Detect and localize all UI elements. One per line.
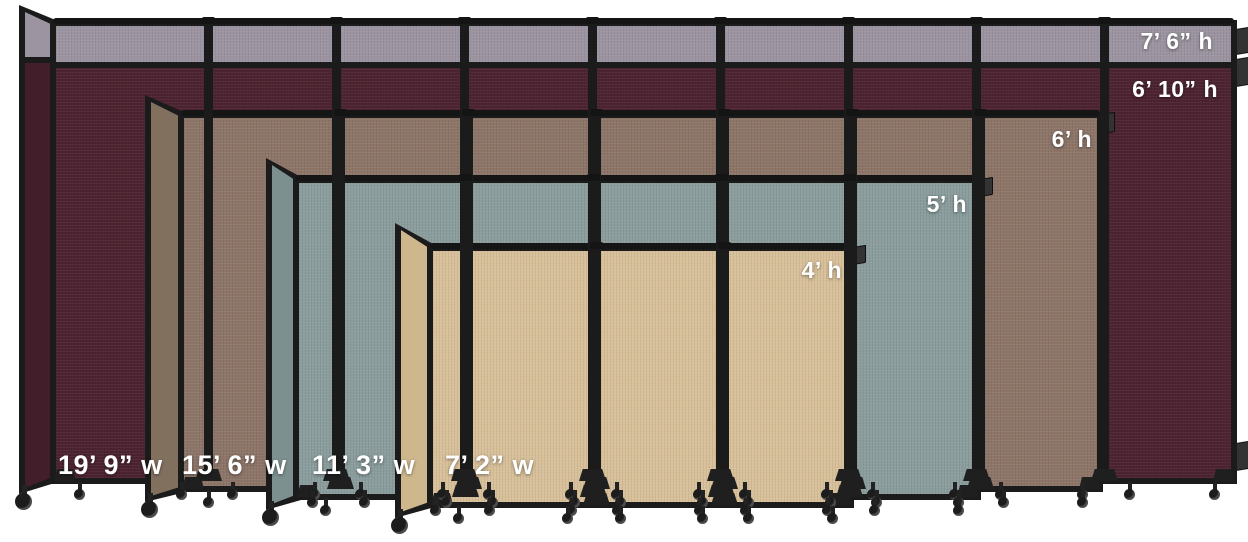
panel-frame-bar xyxy=(976,118,985,486)
caster-wheel xyxy=(1213,482,1217,491)
caster-wheel xyxy=(363,490,367,499)
caster-wheel xyxy=(148,493,153,504)
caster-wheel xyxy=(434,498,438,507)
caster-wheel xyxy=(1002,490,1006,499)
bar-top-cap xyxy=(974,109,987,116)
bar-top-cap xyxy=(202,17,215,24)
caster-wheel xyxy=(747,506,751,515)
caster-wheel xyxy=(457,506,461,515)
bar-top-cap xyxy=(718,242,731,249)
panel-frame-bar xyxy=(720,251,729,502)
bar-top-cap xyxy=(462,109,475,116)
caster-wheel xyxy=(207,490,211,499)
caster-wheel xyxy=(957,498,961,507)
caster-wheel xyxy=(311,490,315,499)
panel-frame-bar xyxy=(592,251,601,502)
caster-wheel xyxy=(324,498,328,507)
height-label: 6’ 10” h xyxy=(1132,76,1218,102)
caster-wheel xyxy=(445,490,449,499)
bar-top-cap xyxy=(458,17,471,24)
bar-top-cap xyxy=(590,109,603,116)
panel-foot xyxy=(711,493,738,505)
size-comparison-figure: 7’ 6” h6’ 10” h19’ 9” w6’ h15’ 6” w5’ h1… xyxy=(0,0,1248,542)
caster-wheel xyxy=(619,506,623,515)
caster-wheel xyxy=(231,482,235,491)
panel-frame-bar xyxy=(204,26,213,478)
panel-foot xyxy=(452,485,479,497)
bar-top-cap xyxy=(970,17,983,24)
bar-top-cap xyxy=(590,242,603,249)
caster-wheel xyxy=(873,498,877,507)
width-label: 7’ 2” w xyxy=(445,450,534,481)
caster-wheel xyxy=(1128,482,1132,491)
bar-top-cap xyxy=(846,109,859,116)
bar-top-cap xyxy=(715,174,728,181)
height-label: 4’ h xyxy=(802,257,842,283)
width-label: 19’ 9” w xyxy=(58,450,163,481)
height-label: 7’ 6” h xyxy=(1140,28,1213,54)
caster-wheel xyxy=(269,501,274,512)
bar-top-cap xyxy=(586,17,599,24)
caster-wheel xyxy=(180,482,184,491)
bar-top-cap xyxy=(714,17,727,24)
bar-top-cap xyxy=(459,174,472,181)
caster-wheel xyxy=(398,509,403,520)
panel-frame-bar xyxy=(336,118,345,486)
caster-wheel xyxy=(566,506,570,515)
width-label: 11’ 3” w xyxy=(312,450,415,481)
bar-top-cap xyxy=(587,174,600,181)
bar-top-cap xyxy=(842,17,855,24)
bar-top-cap xyxy=(843,174,856,181)
caster-wheel xyxy=(488,498,492,507)
caster-wheel xyxy=(570,498,574,507)
caster-wheel xyxy=(1081,490,1085,499)
height-label: 6’ h xyxy=(1052,126,1092,152)
panel-frame-bar xyxy=(461,183,470,494)
bar-top-cap xyxy=(330,17,343,24)
panel-foot xyxy=(583,493,610,505)
caster-wheel xyxy=(826,498,830,507)
corner-foot xyxy=(1213,469,1235,481)
height-label: 5’ h xyxy=(927,191,967,217)
bar-top-cap xyxy=(718,109,731,116)
caster-wheel xyxy=(831,506,835,515)
topper-strip xyxy=(56,26,1231,68)
panel-frame-bar xyxy=(1100,26,1109,478)
width-label: 15’ 6” w xyxy=(182,450,287,481)
caster-wheel xyxy=(701,506,705,515)
bar-top-cap xyxy=(334,109,347,116)
caster-wheel xyxy=(22,485,27,496)
bar-top-cap xyxy=(1098,17,1111,24)
panel-frame-bar xyxy=(845,183,854,494)
caster-wheel xyxy=(78,482,82,491)
